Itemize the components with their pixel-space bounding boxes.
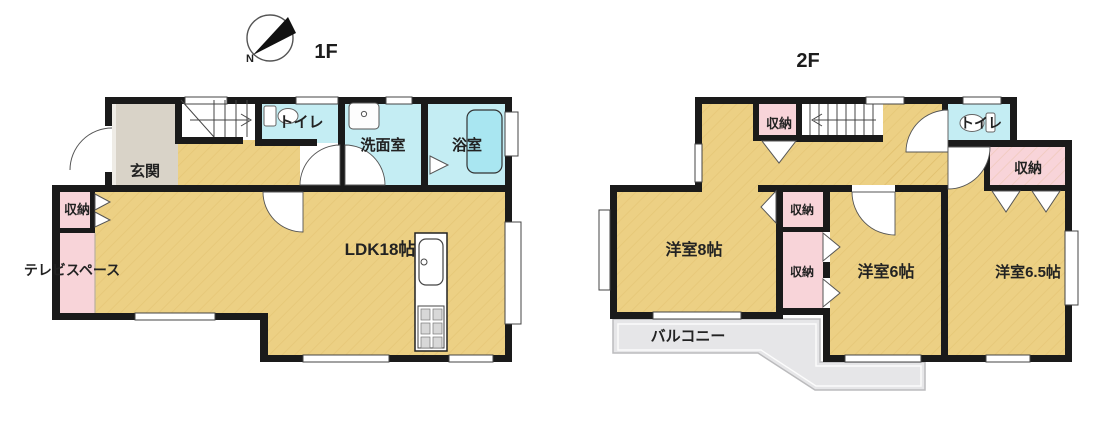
balcony-label: バルコニー	[651, 328, 726, 345]
floorplan-2f: 2F	[599, 50, 1078, 390]
western-6-label: 洋室6帖	[858, 262, 915, 281]
toilet-door-arc	[300, 145, 340, 185]
compass: N	[246, 15, 296, 65]
compass-north-label: N	[246, 53, 254, 65]
storage-top-label: 収納	[766, 116, 792, 131]
floor-title-2f: 2F	[796, 50, 819, 72]
storage-mid-upper-label: 収納	[790, 202, 814, 217]
tv-space-label: テレビスペース	[24, 262, 120, 278]
floorplan-page: N 1F	[0, 0, 1111, 444]
storage-right-label: 収納	[1014, 160, 1042, 176]
washroom-label: 洗面室	[360, 136, 405, 154]
floorplan-1f: N 1F	[24, 15, 521, 362]
kitchen-sink-icon	[419, 239, 443, 285]
genkan-label: 玄関	[130, 162, 160, 180]
western-6-5-label: 洋室6.5帖	[995, 263, 1061, 281]
floorplan-drawing: N 1F	[0, 0, 1111, 444]
storage-mid-lower-label: 収納	[790, 264, 814, 279]
floor-title-1f: 1F	[314, 41, 337, 63]
ldk-label: LDK18帖	[345, 239, 416, 259]
stairs-1f	[181, 100, 251, 137]
toilet-tank-icon	[264, 106, 276, 126]
toilet-label: トイレ	[278, 114, 323, 131]
storage-label: 収納	[64, 202, 90, 217]
toilet2-label: トイレ	[960, 115, 1002, 131]
western-8-label: 洋室8帖	[666, 240, 723, 259]
stairs-2f	[810, 104, 876, 135]
washbasin-icon	[349, 103, 379, 129]
bathroom-label: 浴室	[452, 136, 482, 154]
